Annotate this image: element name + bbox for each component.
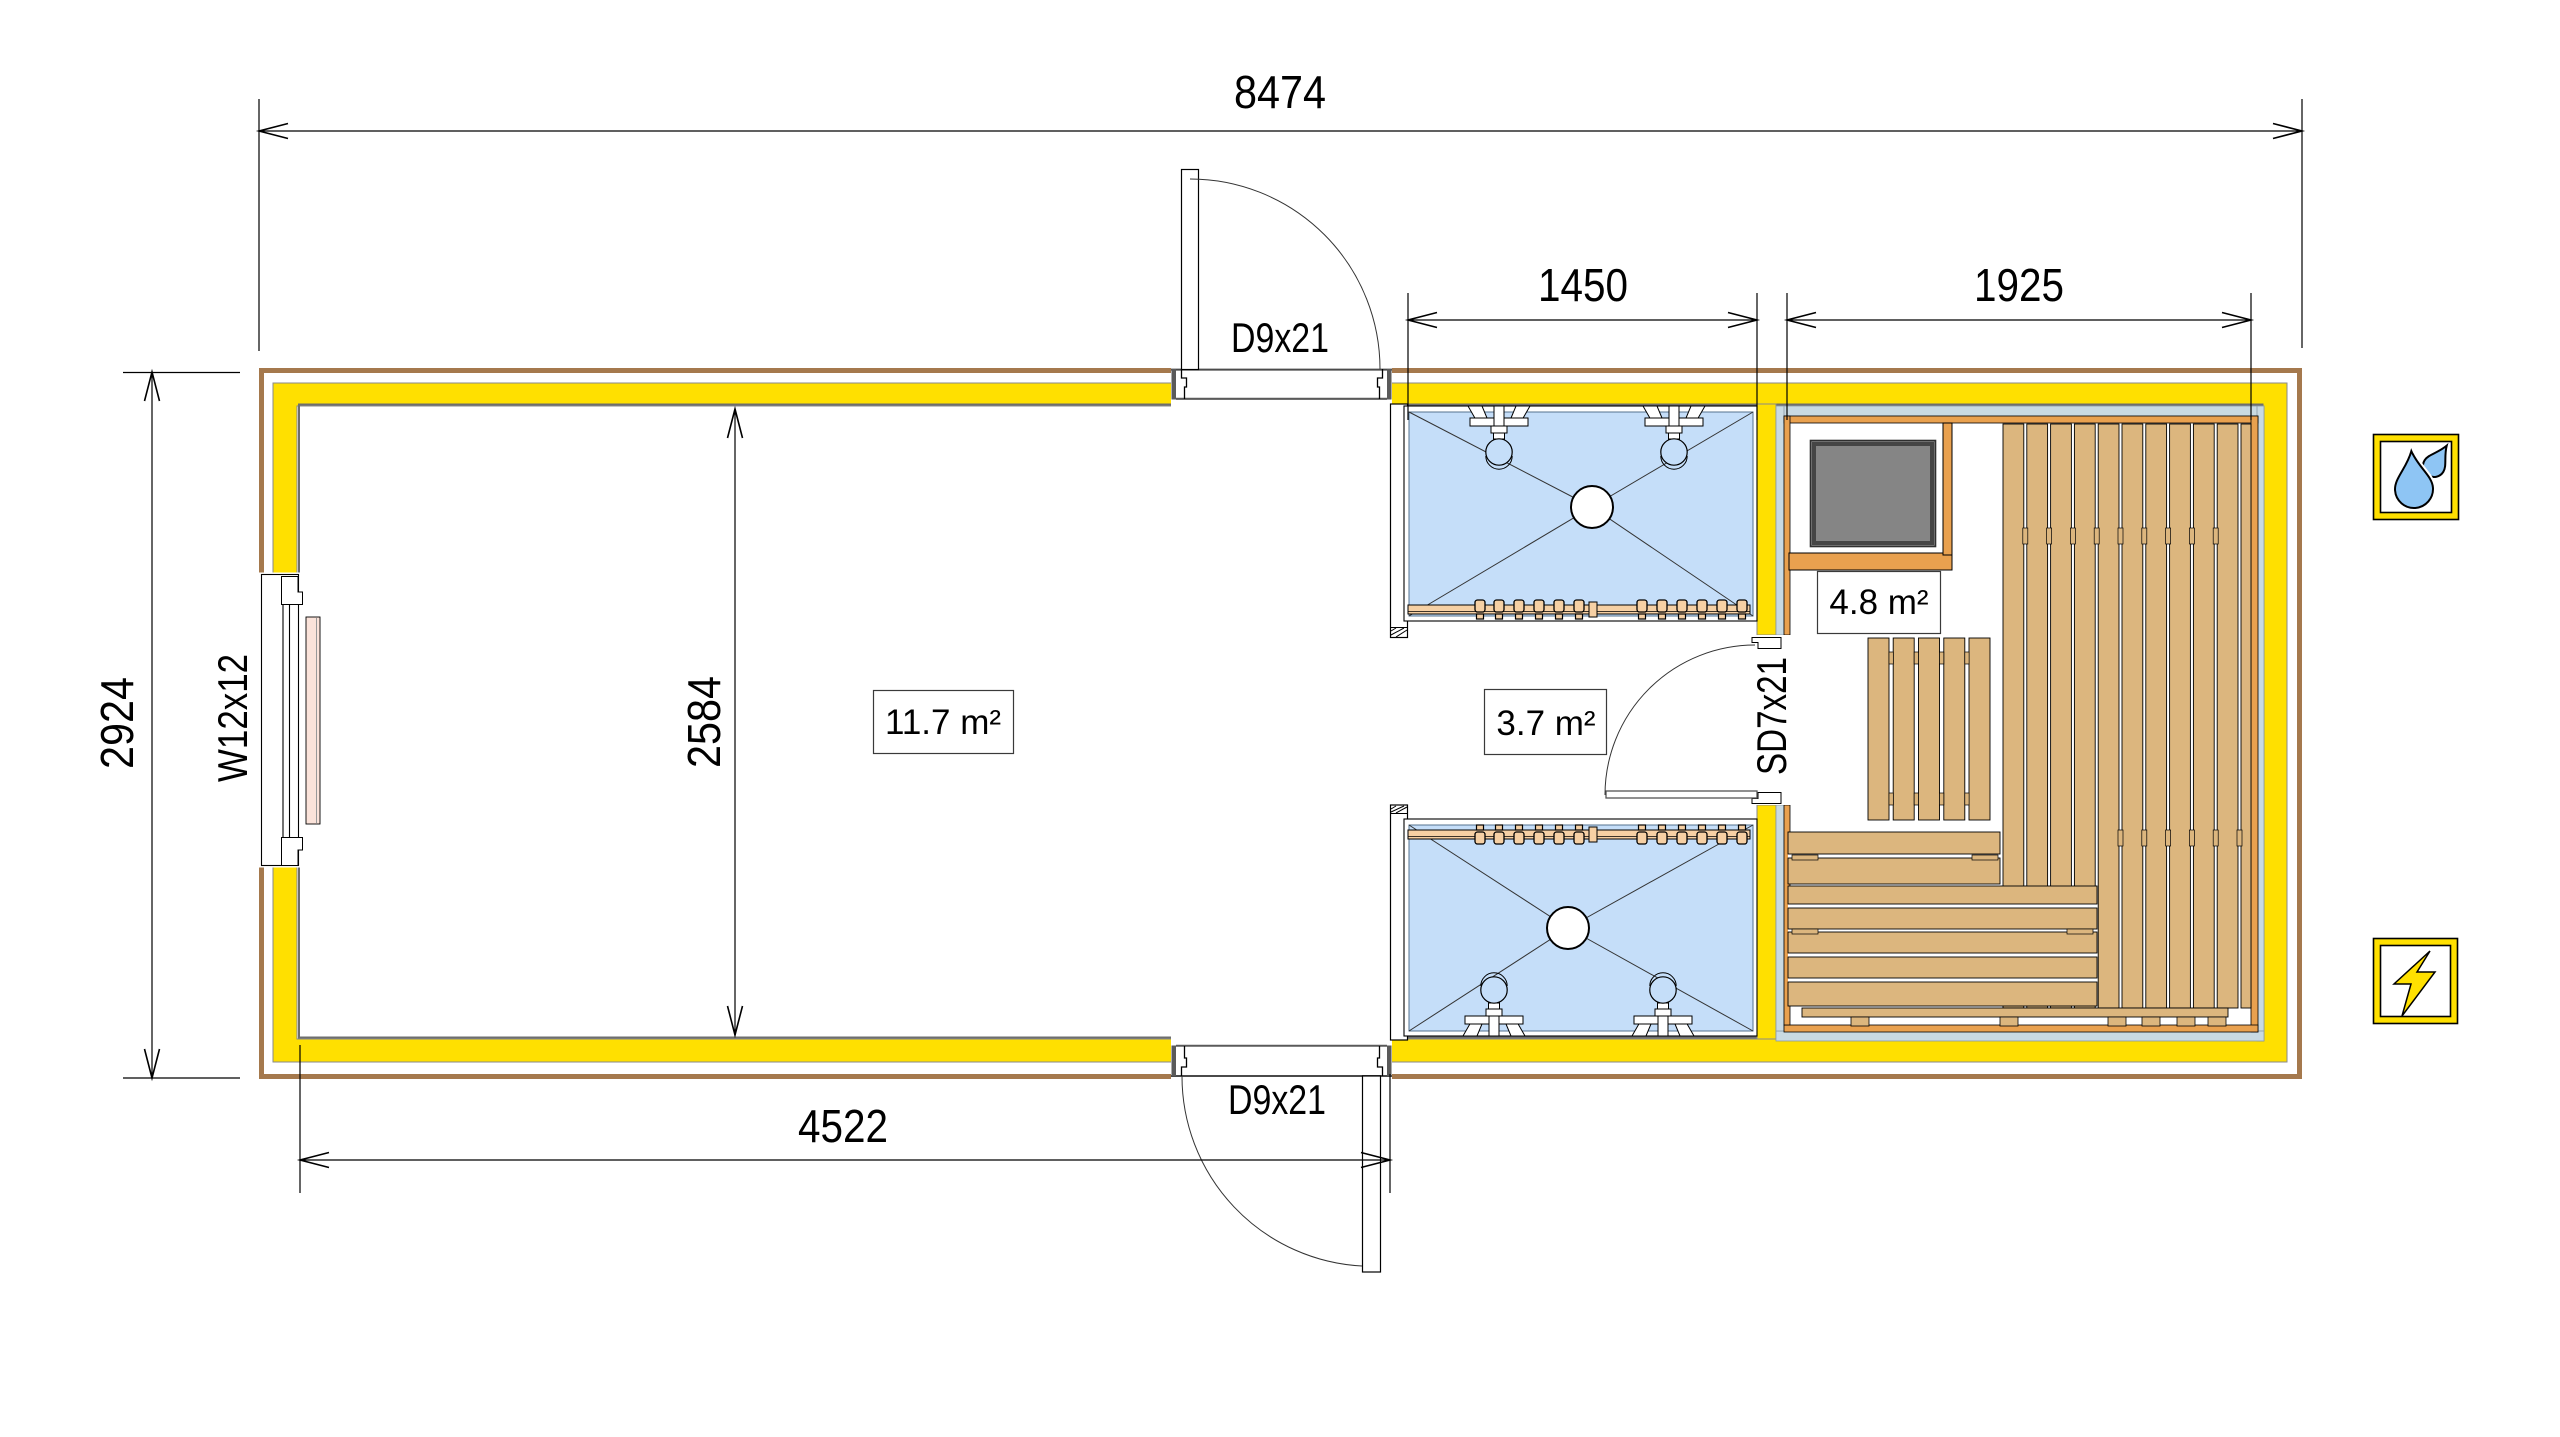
svg-text:1450: 1450 [1538, 259, 1628, 311]
svg-text:1925: 1925 [1974, 259, 2064, 311]
svg-text:11.7 m²: 11.7 m² [885, 703, 1001, 742]
svg-text:W12x12: W12x12 [209, 654, 256, 782]
svg-text:8474: 8474 [1234, 66, 1326, 118]
svg-text:D9x21: D9x21 [1231, 314, 1329, 361]
svg-text:4522: 4522 [798, 1100, 888, 1152]
svg-text:D9x21: D9x21 [1228, 1076, 1326, 1123]
svg-text:4.8 m²: 4.8 m² [1829, 583, 1928, 622]
svg-text:2924: 2924 [91, 677, 143, 769]
svg-text:SD7x21: SD7x21 [1748, 657, 1795, 775]
svg-text:3.7 m²: 3.7 m² [1496, 704, 1595, 743]
svg-text:2584: 2584 [678, 676, 730, 768]
